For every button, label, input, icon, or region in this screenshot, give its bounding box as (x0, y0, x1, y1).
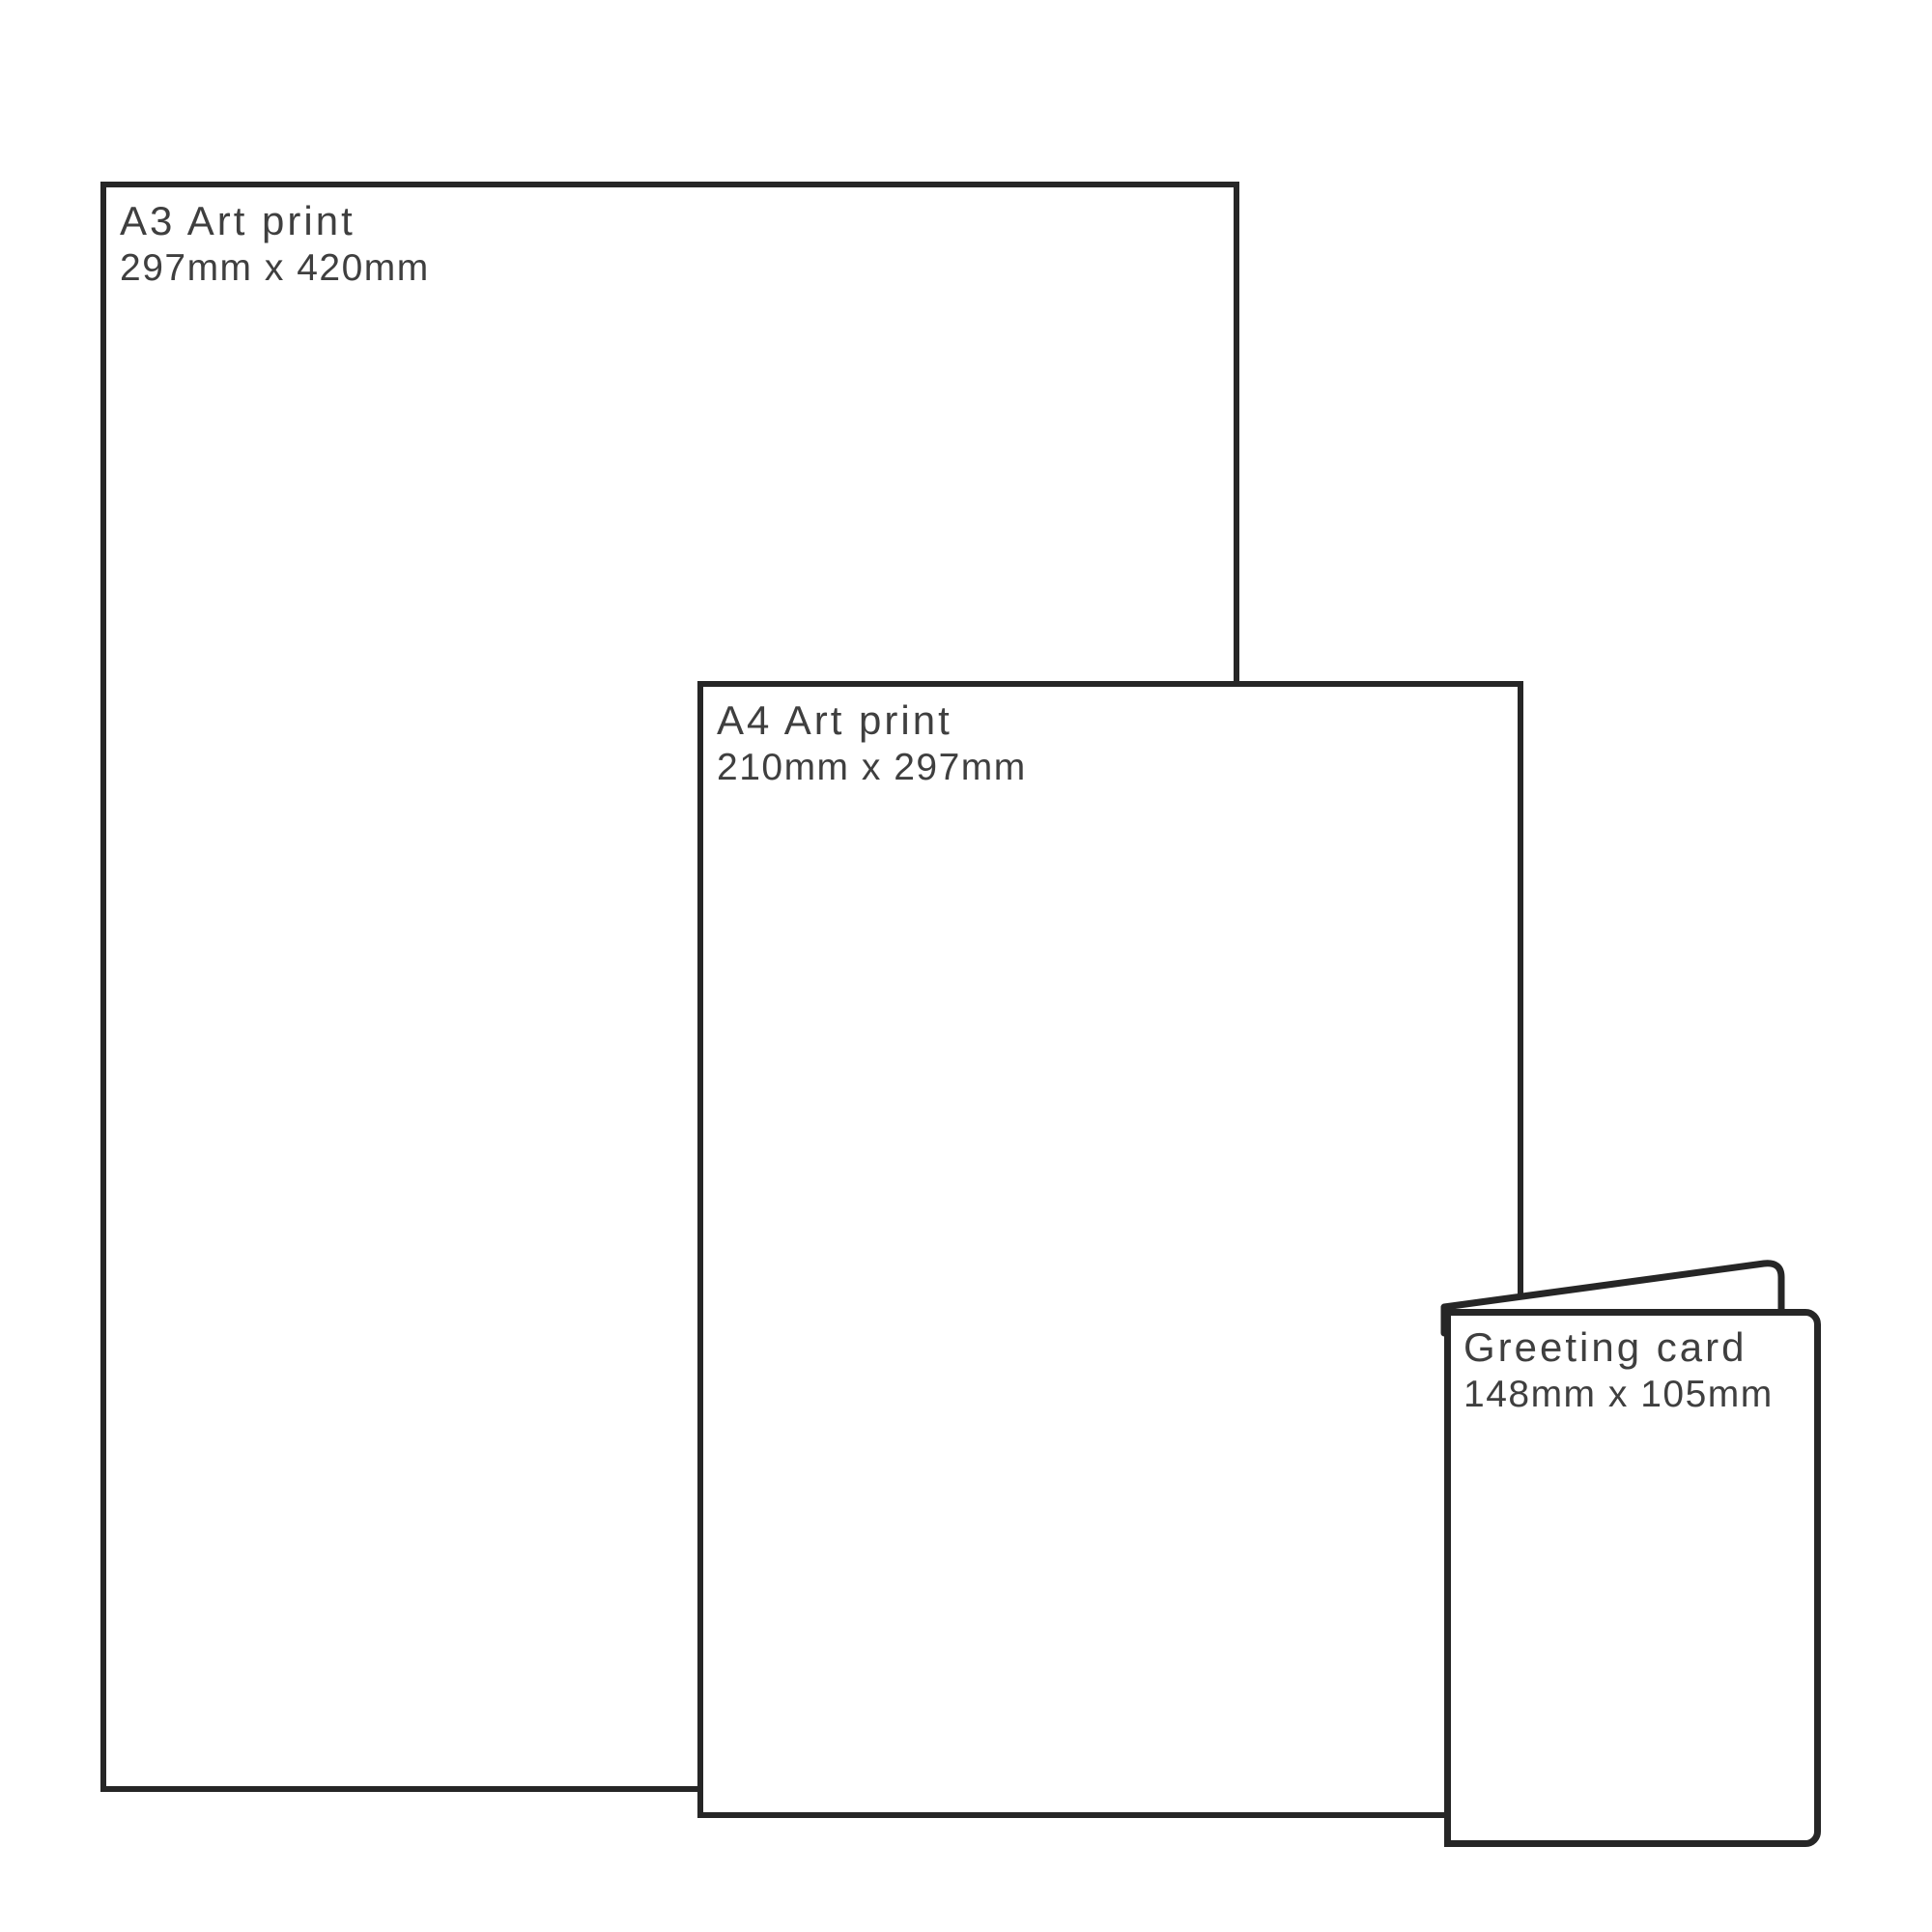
a3-dimensions: 297mm x 420mm (120, 247, 1234, 291)
greeting-card-label: Greeting card 148mm x 105mm (1451, 1316, 1814, 1416)
print-size-comparison-diagram: A3 Art print 297mm x 420mm A4 Art print … (0, 0, 1932, 1932)
a4-print-outline: A4 Art print 210mm x 297mm (697, 681, 1523, 1818)
greeting-card-title: Greeting card (1463, 1323, 1814, 1372)
a4-dimensions: 210mm x 297mm (717, 747, 1518, 790)
greeting-card-dimensions: 148mm x 105mm (1463, 1374, 1814, 1417)
a3-title: A3 Art print (120, 197, 1234, 245)
a3-label: A3 Art print 297mm x 420mm (106, 187, 1234, 290)
greeting-card-outline: Greeting card 148mm x 105mm (1444, 1309, 1821, 1847)
a4-title: A4 Art print (717, 696, 1518, 745)
a4-label: A4 Art print 210mm x 297mm (703, 687, 1518, 789)
